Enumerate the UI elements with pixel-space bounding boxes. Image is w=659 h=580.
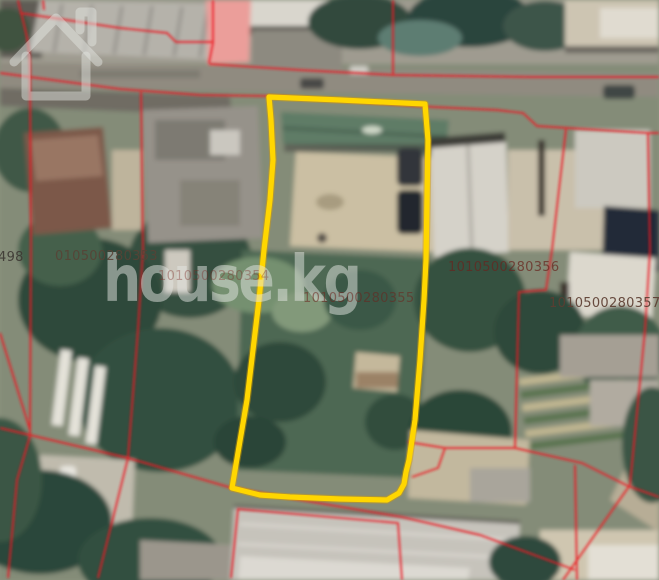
- satellite-map[interactable]: house.kg 498 010500280353 1010500280354 …: [0, 0, 659, 580]
- map-layers: [0, 0, 659, 580]
